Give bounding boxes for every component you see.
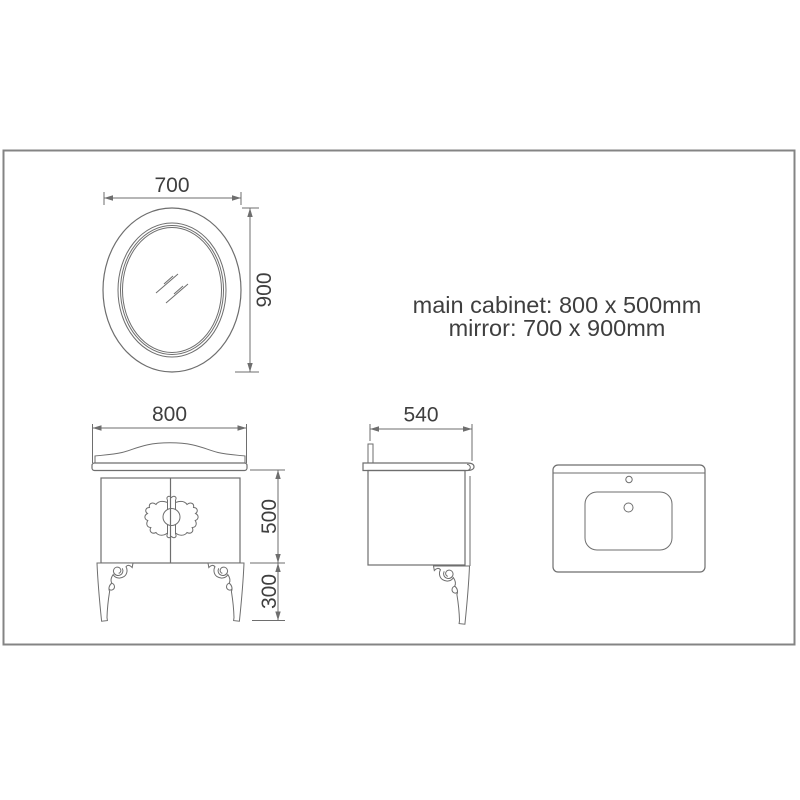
front-leg-height-dimension-label: 300 bbox=[258, 574, 281, 609]
size-notes: main cabinet: 800 x 500mm mirror: 700 x … bbox=[413, 292, 702, 341]
side-depth-dimension-label: 540 bbox=[403, 404, 438, 427]
countertop-front bbox=[92, 463, 247, 471]
mirror-height-dimension-label: 900 bbox=[253, 272, 276, 307]
note-mirror: mirror: 700 x 900mm bbox=[449, 315, 666, 341]
countertop-side bbox=[363, 463, 474, 471]
front-width-dimension-label: 800 bbox=[152, 403, 187, 426]
front-body-height-dimension-label: 500 bbox=[258, 499, 281, 534]
technical-drawing-canvas: 700 900 800 bbox=[0, 0, 800, 800]
medallion-knob bbox=[163, 509, 180, 526]
mirror-width-dimension-label: 700 bbox=[154, 174, 189, 197]
drawing-page: 700 900 800 bbox=[0, 0, 800, 800]
